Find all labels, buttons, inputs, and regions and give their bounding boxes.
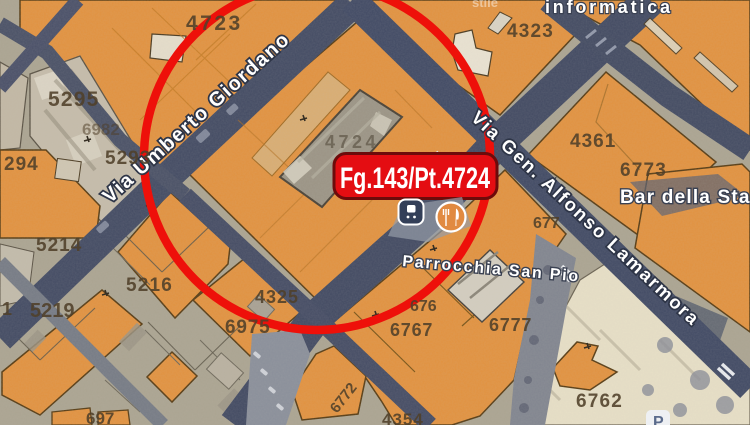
svg-text:294: 294 [4,154,39,175]
svg-text:697: 697 [86,409,114,425]
svg-text:677: 677 [533,215,560,232]
svg-text:4323: 4323 [507,21,554,42]
svg-text:Bar della Sta: Bar della Sta [620,187,750,208]
svg-text:4723: 4723 [186,12,243,35]
svg-text:676: 676 [410,298,437,315]
svg-text:6975: 6975 [225,317,270,338]
svg-text:stile: stile [472,0,498,10]
svg-text:6767: 6767 [390,320,433,340]
svg-text:5216: 5216 [126,275,173,296]
svg-text:5295: 5295 [48,88,100,111]
svg-text:6762: 6762 [576,391,623,412]
svg-text:6982: 6982 [82,120,120,139]
svg-text:informatica: informatica [545,0,673,17]
svg-text:6777: 6777 [489,315,532,335]
svg-text:4724: 4724 [325,132,379,152]
svg-text:4354: 4354 [382,410,424,425]
svg-text:5293: 5293 [105,148,151,169]
svg-text:4325: 4325 [255,287,299,307]
svg-text:1: 1 [2,299,12,319]
svg-text:4361: 4361 [570,131,616,152]
svg-text:Fg.143/Pt.4724: Fg.143/Pt.4724 [340,162,490,195]
svg-text:P: P [653,414,664,425]
svg-text:5219: 5219 [30,300,75,322]
svg-text:6773: 6773 [620,160,667,181]
svg-text:5214: 5214 [36,235,82,256]
